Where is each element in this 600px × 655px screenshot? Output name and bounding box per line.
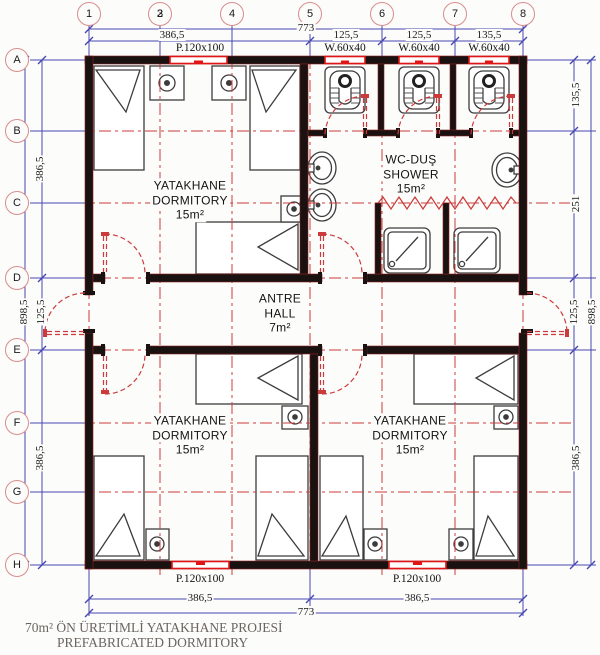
shower-tray <box>454 228 500 273</box>
dim-left-total: 898,5 <box>18 299 30 326</box>
grid-label: 3 <box>157 8 163 20</box>
room-area: 7m² <box>267 320 293 335</box>
nightstand <box>494 406 518 429</box>
sink <box>308 189 336 221</box>
dim-left-d-e: 125,5 <box>35 299 47 326</box>
grid-bubble-col-2-3: 23 <box>148 2 172 26</box>
grid-label: 6 <box>379 8 385 20</box>
bed <box>320 456 363 560</box>
dim-right-d-e: 125,5 <box>568 299 580 326</box>
nightstand <box>364 529 387 560</box>
dim-top-seg-4: 135,5 <box>476 29 503 41</box>
room-name-tr: YATAKHANE <box>372 413 449 428</box>
bed <box>256 456 308 560</box>
project-title-english: PREFABRICATED DORMITORY <box>57 635 248 651</box>
room-name-tr: WC-DUŞ <box>383 152 438 167</box>
grid-bubble-row-f: F <box>5 411 29 435</box>
room-name-tr: YATAKHANE <box>152 413 229 428</box>
project-title-turkish: 70m² ÖN ÜRETİMLİ YATAKHANE PROJESİ <box>25 620 282 636</box>
grid-label: F <box>14 417 21 429</box>
bed <box>196 222 302 274</box>
door-swing-dorm-top-left <box>101 232 145 274</box>
grid-bubble-row-e: E <box>5 338 29 362</box>
grid-bubble-col-1: 1 <box>77 2 101 26</box>
grid-label: C <box>13 197 21 209</box>
door-swing-entrance-left <box>43 293 85 337</box>
window-top-dorm <box>170 57 227 65</box>
room-name-tr: ANTRE <box>257 291 303 306</box>
dim-top-seg-3: 125,5 <box>406 29 433 41</box>
door-swing-entrance-right <box>527 293 569 337</box>
dim-right-a-b: 135,5 <box>570 82 582 109</box>
window-label-wc-1: W.60x40 <box>324 42 365 54</box>
dim-bottom-seg-1: 386,5 <box>187 592 214 604</box>
dim-bottom-seg-2: 386,5 <box>404 592 431 604</box>
dim-bottom-total: 773 <box>297 606 316 618</box>
dim-left-a-d: 386,5 <box>34 156 46 183</box>
nightstand <box>282 406 308 429</box>
dim-right-b-d: 251 <box>570 195 582 214</box>
nightstand <box>150 66 184 100</box>
room-area: 15m² <box>394 442 427 457</box>
window-label-bottom-right: P.120x100 <box>393 573 441 585</box>
grid-bubble-row-a: A <box>5 48 29 72</box>
grid-label: B <box>13 125 20 137</box>
dim-left-e-h: 386,5 <box>34 445 46 472</box>
grid-label: G <box>13 486 22 498</box>
room-area: 15m² <box>174 207 207 222</box>
window-label-bottom-left: P.120x100 <box>176 573 224 585</box>
bed <box>94 456 144 560</box>
sink <box>308 152 336 184</box>
grid-bubble-row-h: H <box>5 553 29 577</box>
room-area: 15m² <box>174 442 207 457</box>
dim-top-seg-1: 386,5 <box>159 29 186 41</box>
bed <box>94 66 144 170</box>
grid-label: H <box>13 559 21 571</box>
window-label-wc-3: W.60x40 <box>468 42 509 54</box>
door-swing-wc <box>318 232 362 274</box>
window-bottom-left <box>172 562 229 569</box>
squat-toilet <box>325 67 365 113</box>
grid-label: E <box>13 344 20 356</box>
bed <box>414 354 518 404</box>
room-label-dorm-top-left: YATAKHANE DORMITORY 15m² <box>150 178 230 222</box>
bed <box>474 456 518 560</box>
grid-label: 4 <box>229 8 235 20</box>
squat-toilet <box>399 67 439 113</box>
bed <box>196 354 302 404</box>
nightstand <box>212 66 246 100</box>
shower-tray <box>384 228 430 273</box>
room-label-hall: ANTRE HALL 7m² <box>257 291 303 335</box>
window-wc-2 <box>399 57 439 65</box>
window-label-top: P.120x100 <box>176 42 224 54</box>
grid-label: 5 <box>307 8 313 20</box>
grid-label: 1 <box>86 8 92 20</box>
dim-top-seg-2: 125,5 <box>333 29 360 41</box>
sink <box>492 153 522 187</box>
room-label-wc-shower: WC-DUŞ SHOWER 15m² <box>381 152 441 196</box>
room-name-en: DORMITORY <box>150 193 230 208</box>
window-wc-1 <box>325 57 365 65</box>
room-label-dorm-bottom-left: YATAKHANE DORMITORY 15m² <box>150 413 230 457</box>
grid-bubble-col-4: 4 <box>220 2 244 26</box>
grid-bubble-row-c: C <box>5 191 29 215</box>
room-name-en: DORMITORY <box>150 428 230 443</box>
room-name-en: DORMITORY <box>370 428 450 443</box>
grid-bubble-col-8: 8 <box>511 2 535 26</box>
room-name-en: SHOWER <box>381 167 441 182</box>
dim-right-total: 898,5 <box>586 299 598 326</box>
room-name-tr: YATAKHANE <box>152 178 229 193</box>
window-bottom-right <box>389 562 446 569</box>
door-swing-dorm-bottom-left <box>101 354 145 394</box>
grid-label: D <box>13 272 21 284</box>
window-label-wc-2: W.60x40 <box>398 42 439 54</box>
window-wc-3 <box>469 57 509 65</box>
nightstand <box>449 529 473 560</box>
dim-right-e-h: 386,5 <box>570 445 582 472</box>
room-label-dorm-bottom-right: YATAKHANE DORMITORY 15m² <box>370 413 450 457</box>
nightstand <box>146 529 169 560</box>
dim-top-total: 773 <box>297 22 316 34</box>
grid-bubble-col-6: 6 <box>370 2 394 26</box>
grid-bubble-row-g: G <box>5 480 29 504</box>
room-area: 15m² <box>395 181 428 196</box>
grid-label: 7 <box>452 8 458 20</box>
door-swing-dorm-bottom-right <box>318 354 362 394</box>
squat-toilet <box>469 67 509 113</box>
bed <box>250 66 300 170</box>
grid-label: A <box>13 54 20 66</box>
room-name-en: HALL <box>262 306 297 321</box>
grid-bubble-col-7: 7 <box>443 2 467 26</box>
grid-bubble-row-d: D <box>5 266 29 290</box>
floorplan-sheet: 1 23 4 5 6 7 8 A B C D E F G H 773 386,5… <box>0 0 600 655</box>
grid-label: 8 <box>520 8 526 20</box>
grid-bubble-row-b: B <box>5 119 29 143</box>
